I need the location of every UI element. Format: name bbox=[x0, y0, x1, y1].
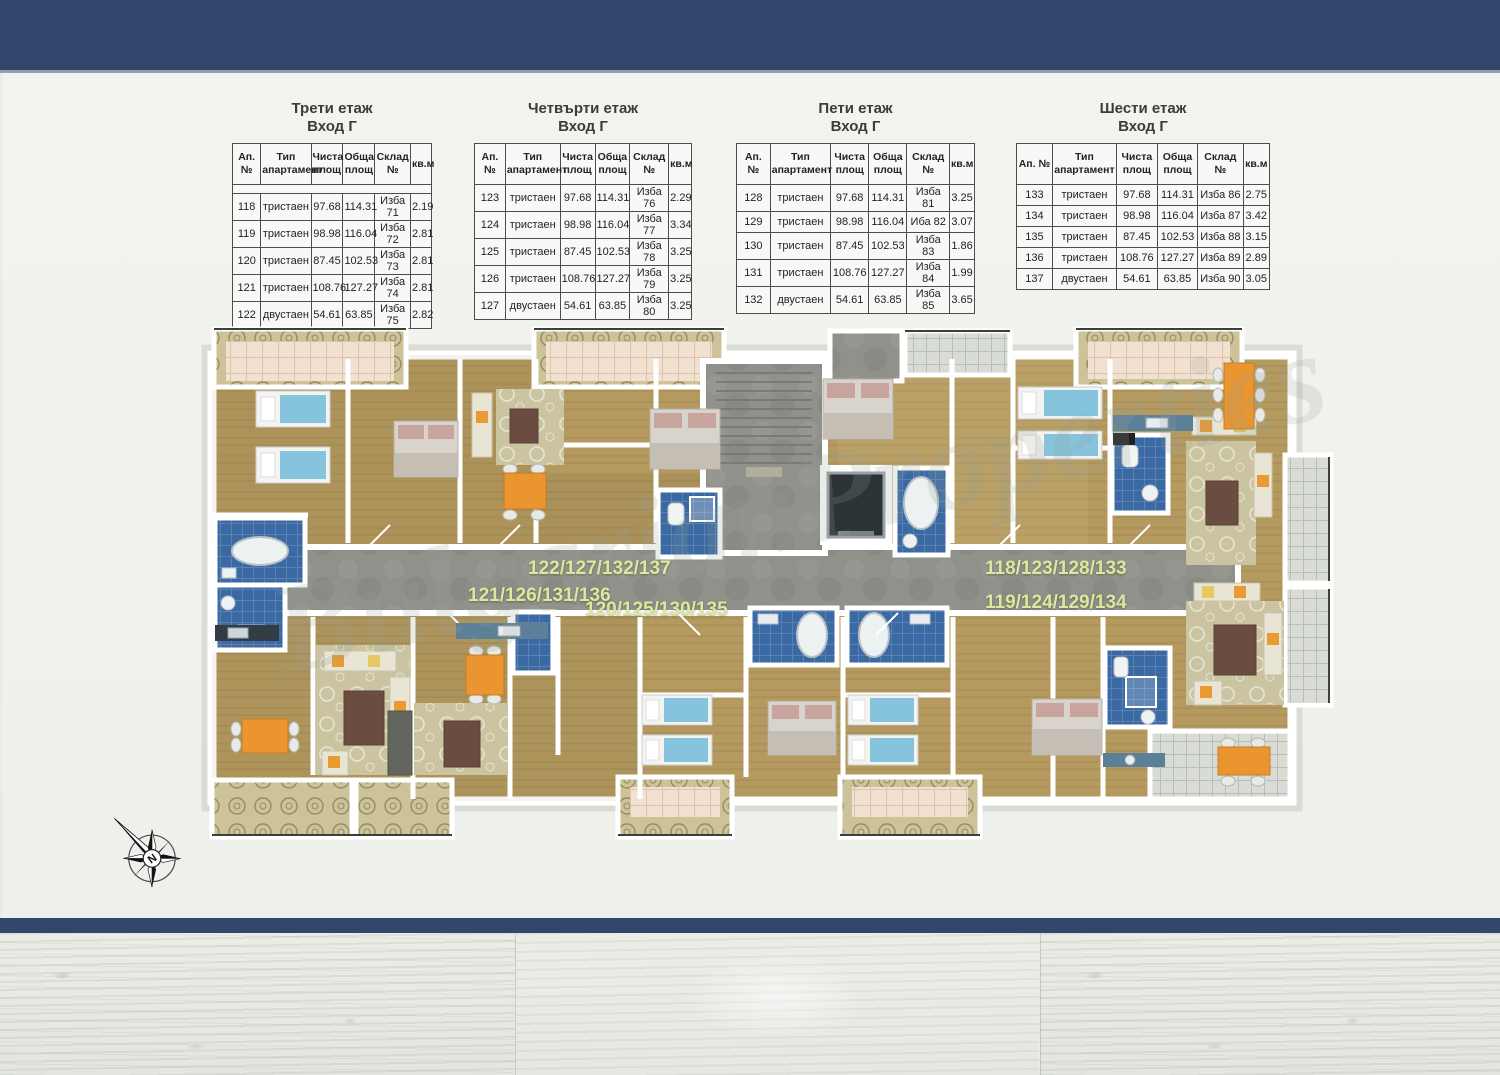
table-cell: тристаен bbox=[770, 185, 830, 212]
table-cell: тристаен bbox=[770, 233, 830, 260]
stone-seam bbox=[515, 933, 516, 1075]
column-header: кв.м bbox=[950, 144, 975, 185]
table-cell: 54.61 bbox=[1117, 269, 1158, 290]
column-header: Тип апартамент bbox=[1052, 144, 1116, 185]
table-cell: 125 bbox=[475, 239, 506, 266]
table-cell: тристаен bbox=[261, 275, 311, 302]
table-cell: 63.85 bbox=[869, 287, 907, 314]
entrance-subtitle: Вход Г bbox=[1118, 118, 1168, 135]
table-cell: 132 bbox=[737, 287, 771, 314]
top-navy-bar bbox=[0, 0, 1500, 73]
column-header: кв.м bbox=[1243, 144, 1269, 185]
spacer-row bbox=[233, 185, 432, 194]
table-cell: Изба 87 bbox=[1198, 206, 1243, 227]
table-cell: 63.85 bbox=[595, 293, 630, 320]
spacer-cell bbox=[233, 185, 432, 194]
table-cell: 3.34 bbox=[669, 212, 692, 239]
table-cell: двустаен bbox=[770, 287, 830, 314]
table-row: 123тристаен97.68114.31Изба 762.29 bbox=[475, 185, 692, 212]
table-cell: 3.05 bbox=[1243, 269, 1269, 290]
table-cell: 1.99 bbox=[950, 260, 975, 287]
unit-label-122-127-132-137: 122/127/132/137 bbox=[528, 558, 671, 580]
apartments-table: Ап. №Тип апартаментЧиста площОбща площСк… bbox=[474, 143, 692, 320]
table-row: 127двустаен54.6163.85Изба 803.25 bbox=[475, 293, 692, 320]
floor-title: Шести етаж bbox=[1100, 100, 1187, 117]
table-cell: 108.76 bbox=[1117, 248, 1158, 269]
table-cell: 2.81 bbox=[410, 275, 431, 302]
table-row: 126тристаен108.76127.27Изба 793.25 bbox=[475, 266, 692, 293]
table-fifth-floor: Пети етаж Вход Г Ап. №Тип апартаментЧист… bbox=[736, 100, 975, 314]
table-title: Четвърти етаж Вход Г bbox=[474, 100, 692, 136]
header-row: Ап. №Тип апартаментЧиста площОбща площСк… bbox=[1017, 144, 1270, 185]
unit-label-120-125-130-135: 120/125/130/135 bbox=[585, 599, 728, 621]
table-cell: 108.76 bbox=[560, 266, 595, 293]
stone-seam bbox=[1040, 933, 1041, 1075]
table-cell: 98.98 bbox=[560, 212, 595, 239]
elevator bbox=[820, 465, 892, 545]
table-cell: 119 bbox=[233, 221, 261, 248]
column-header: Обща площ bbox=[869, 144, 907, 185]
table-cell: 97.68 bbox=[1117, 185, 1158, 206]
table-cell: тристаен bbox=[261, 194, 311, 221]
column-header: кв.м bbox=[410, 144, 431, 185]
table-title: Пети етаж Вход Г bbox=[736, 100, 975, 136]
table-cell: 129 bbox=[737, 212, 771, 233]
table-cell: 102.53 bbox=[1157, 227, 1198, 248]
compass-rose: N bbox=[108, 808, 188, 896]
table-cell: 128 bbox=[737, 185, 771, 212]
column-header: Склад № bbox=[630, 144, 669, 185]
table-cell: Иба 82 bbox=[907, 212, 950, 233]
table-cell: Изба 90 bbox=[1198, 269, 1243, 290]
table-cell: 98.98 bbox=[831, 212, 869, 233]
table-cell: двустаен bbox=[1052, 269, 1116, 290]
table-cell: 97.68 bbox=[311, 194, 343, 221]
table-cell: 3.65 bbox=[950, 287, 975, 314]
table-title: Шести етаж Вход Г bbox=[1016, 100, 1270, 136]
page-canvas: Трети етаж Вход Г Ап. №Тип апартаментЧис… bbox=[0, 0, 1500, 1075]
table-cell: 114.31 bbox=[343, 194, 375, 221]
floor-title: Трети етаж bbox=[291, 100, 372, 117]
table-cell: 108.76 bbox=[831, 260, 869, 287]
table-row: 137двустаен54.6163.85Изба 903.05 bbox=[1017, 269, 1270, 290]
table-cell: Изба 78 bbox=[630, 239, 669, 266]
table-cell: Изба 72 bbox=[375, 221, 411, 248]
table-cell: 2.75 bbox=[1243, 185, 1269, 206]
table-cell: 102.53 bbox=[595, 239, 630, 266]
apartments-table: Ап. №Тип апартаментЧиста площОбща площСк… bbox=[1016, 143, 1270, 290]
table-cell: 87.45 bbox=[311, 248, 343, 275]
table-cell: 87.45 bbox=[1117, 227, 1158, 248]
table-cell: 130 bbox=[737, 233, 771, 260]
table-cell: 127.27 bbox=[343, 275, 375, 302]
table-cell: 98.98 bbox=[1117, 206, 1158, 227]
table-cell: 2.81 bbox=[410, 221, 431, 248]
table-cell: 126 bbox=[475, 266, 506, 293]
table-cell: 54.61 bbox=[560, 293, 595, 320]
table-cell: тристаен bbox=[1052, 185, 1116, 206]
table-cell: 2.19 bbox=[410, 194, 431, 221]
column-header: Обща площ bbox=[343, 144, 375, 185]
table-cell: 133 bbox=[1017, 185, 1053, 206]
table-cell: 127.27 bbox=[1157, 248, 1198, 269]
table-cell: Изба 71 bbox=[375, 194, 411, 221]
table-cell: 98.98 bbox=[311, 221, 343, 248]
table-row: 131тристаен108.76127.27Изба 841.99 bbox=[737, 260, 975, 287]
stone-panel bbox=[516, 933, 1039, 1075]
table-row: 125тристаен87.45102.53Изба 783.25 bbox=[475, 239, 692, 266]
apartments-table: Ап. №Тип апартаментЧиста площОбща площСк… bbox=[232, 143, 432, 329]
table-fourth-floor: Четвърти етаж Вход Г Ап. №Тип апартамент… bbox=[474, 100, 692, 320]
table-cell: 102.53 bbox=[343, 248, 375, 275]
stone-texture-footer bbox=[0, 933, 1500, 1075]
table-cell: 2.81 bbox=[410, 248, 431, 275]
column-header: Склад № bbox=[1198, 144, 1243, 185]
column-header: Ап. № bbox=[475, 144, 506, 185]
unit-label-119-124-129-134: 119/124/129/134 bbox=[985, 592, 1127, 614]
table-title: Трети етаж Вход Г bbox=[232, 100, 432, 136]
column-header: Обща площ bbox=[1157, 144, 1198, 185]
table-row: 136тристаен108.76127.27Изба 892.89 bbox=[1017, 248, 1270, 269]
table-row: 130тристаен87.45102.53Изба 831.86 bbox=[737, 233, 975, 260]
table-cell: 108.76 bbox=[311, 275, 343, 302]
table-cell: 121 bbox=[233, 275, 261, 302]
table-cell: 54.61 bbox=[831, 287, 869, 314]
table-sixth-floor: Шести етаж Вход Г Ап. №Тип апартаментЧис… bbox=[1016, 100, 1270, 290]
table-row: 135тристаен87.45102.53Изба 883.15 bbox=[1017, 227, 1270, 248]
table-cell: 127.27 bbox=[595, 266, 630, 293]
table-cell: тристаен bbox=[1052, 248, 1116, 269]
table-cell: Изба 84 bbox=[907, 260, 950, 287]
table-cell: Изба 76 bbox=[630, 185, 669, 212]
table-cell: 3.42 bbox=[1243, 206, 1269, 227]
column-header: Склад № bbox=[375, 144, 411, 185]
table-cell: Изба 83 bbox=[907, 233, 950, 260]
apartments-table: Ап. №Тип апартаментЧиста площОбща площСк… bbox=[736, 143, 975, 314]
column-header: Тип апартамент bbox=[505, 144, 560, 185]
column-header: Тип апартамент bbox=[770, 144, 830, 185]
table-row: 134тристаен98.98116.04Изба 873.42 bbox=[1017, 206, 1270, 227]
table-cell: 116.04 bbox=[1157, 206, 1198, 227]
table-cell: 102.53 bbox=[869, 233, 907, 260]
table-cell: тристаен bbox=[505, 239, 560, 266]
table-cell: тристаен bbox=[770, 212, 830, 233]
table-cell: 124 bbox=[475, 212, 506, 239]
column-header: Чиста площ bbox=[831, 144, 869, 185]
entrance-subtitle: Вход Г bbox=[307, 118, 357, 135]
table-cell: 1.86 bbox=[950, 233, 975, 260]
table-cell: 63.85 bbox=[1157, 269, 1198, 290]
table-cell: двустаен bbox=[505, 293, 560, 320]
header-row: Ап. №Тип апартаментЧиста площОбща площСк… bbox=[233, 144, 432, 185]
column-header: Обща площ bbox=[595, 144, 630, 185]
column-header: Ап. № bbox=[737, 144, 771, 185]
table-cell: тристаен bbox=[505, 212, 560, 239]
table-cell: 3.15 bbox=[1243, 227, 1269, 248]
table-cell: Изба 77 bbox=[630, 212, 669, 239]
table-cell: 114.31 bbox=[595, 185, 630, 212]
compass-icon: N bbox=[108, 808, 188, 896]
table-cell: 114.31 bbox=[1157, 185, 1198, 206]
stone-panel bbox=[1040, 933, 1500, 1075]
table-row: 119тристаен98.98116.04Изба 722.81 bbox=[233, 221, 432, 248]
table-cell: 118 bbox=[233, 194, 261, 221]
table-cell: Изба 85 bbox=[907, 287, 950, 314]
table-cell: 3.25 bbox=[669, 293, 692, 320]
unit-label-118-123-128-133: 118/123/128/133 bbox=[985, 558, 1127, 580]
stone-panel bbox=[0, 933, 515, 1075]
table-cell: 3.25 bbox=[669, 239, 692, 266]
column-header: Чиста площ bbox=[1117, 144, 1158, 185]
table-cell: 87.45 bbox=[831, 233, 869, 260]
table-cell: 87.45 bbox=[560, 239, 595, 266]
table-row: 128тристаен97.68114.31Изба 813.25 bbox=[737, 185, 975, 212]
table-cell: тристаен bbox=[770, 260, 830, 287]
table-cell: 137 bbox=[1017, 269, 1053, 290]
column-header: Тип апартамент bbox=[261, 144, 311, 185]
column-header: Чиста площ bbox=[311, 144, 343, 185]
column-header: Ап. № bbox=[233, 144, 261, 185]
table-cell: Изба 81 bbox=[907, 185, 950, 212]
column-header: кв.м bbox=[669, 144, 692, 185]
table-cell: тристаен bbox=[261, 221, 311, 248]
column-header: Ап. № bbox=[1017, 144, 1053, 185]
table-cell: 116.04 bbox=[595, 212, 630, 239]
table-cell: 97.68 bbox=[560, 185, 595, 212]
table-row: 133тристаен97.68114.31Изба 862.75 bbox=[1017, 185, 1270, 206]
table-cell: Изба 88 bbox=[1198, 227, 1243, 248]
header-row: Ап. №Тип апартаментЧиста площОбща площСк… bbox=[475, 144, 692, 185]
table-cell: 127.27 bbox=[869, 260, 907, 287]
header-row: Ап. №Тип апартаментЧиста площОбща площСк… bbox=[737, 144, 975, 185]
table-cell: тристаен bbox=[1052, 227, 1116, 248]
table-cell: тристаен bbox=[505, 266, 560, 293]
table-third-floor: Трети етаж Вход Г Ап. №Тип апартаментЧис… bbox=[232, 100, 432, 329]
table-cell: 134 bbox=[1017, 206, 1053, 227]
table-cell: 114.31 bbox=[869, 185, 907, 212]
table-row: 124тристаен98.98116.04Изба 773.34 bbox=[475, 212, 692, 239]
table-cell: 2.89 bbox=[1243, 248, 1269, 269]
table-cell: 135 bbox=[1017, 227, 1053, 248]
table-cell: Изба 80 bbox=[630, 293, 669, 320]
table-cell: 120 bbox=[233, 248, 261, 275]
table-cell: 116.04 bbox=[869, 212, 907, 233]
table-row: 132двустаен54.6163.85Изба 853.65 bbox=[737, 287, 975, 314]
entrance-subtitle: Вход Г bbox=[831, 118, 881, 135]
table-cell: 136 bbox=[1017, 248, 1053, 269]
table-row: 120тристаен87.45102.53Изба 732.81 bbox=[233, 248, 432, 275]
table-cell: 3.07 bbox=[950, 212, 975, 233]
table-cell: 131 bbox=[737, 260, 771, 287]
table-cell: Изба 86 bbox=[1198, 185, 1243, 206]
table-cell: 127 bbox=[475, 293, 506, 320]
table-cell: 2.29 bbox=[669, 185, 692, 212]
floor-plan: BulgarianProperties 122/127/132/137 121/… bbox=[198, 325, 1358, 850]
column-header: Чиста площ bbox=[560, 144, 595, 185]
table-cell: 116.04 bbox=[343, 221, 375, 248]
table-cell: 123 bbox=[475, 185, 506, 212]
floor-title: Четвърти етаж bbox=[528, 100, 638, 117]
table-cell: 3.25 bbox=[950, 185, 975, 212]
table-cell: тристаен bbox=[261, 248, 311, 275]
table-cell: Изба 79 bbox=[630, 266, 669, 293]
table-cell: тристаен bbox=[505, 185, 560, 212]
table-cell: Изба 89 bbox=[1198, 248, 1243, 269]
table-row: 121тристаен108.76127.27Изба 742.81 bbox=[233, 275, 432, 302]
floor-title: Пети етаж bbox=[818, 100, 892, 117]
table-row: 118тристаен97.68114.31Изба 712.19 bbox=[233, 194, 432, 221]
table-cell: Изба 73 bbox=[375, 248, 411, 275]
floor-plan-drawing bbox=[198, 325, 1358, 850]
table-row: 129тристаен98.98116.04Иба 823.07 bbox=[737, 212, 975, 233]
column-header: Склад № bbox=[907, 144, 950, 185]
table-cell: тристаен bbox=[1052, 206, 1116, 227]
bottom-navy-bar bbox=[0, 918, 1500, 933]
table-cell: 3.25 bbox=[669, 266, 692, 293]
table-cell: Изба 74 bbox=[375, 275, 411, 302]
table-cell: 97.68 bbox=[831, 185, 869, 212]
entrance-subtitle: Вход Г bbox=[558, 118, 608, 135]
